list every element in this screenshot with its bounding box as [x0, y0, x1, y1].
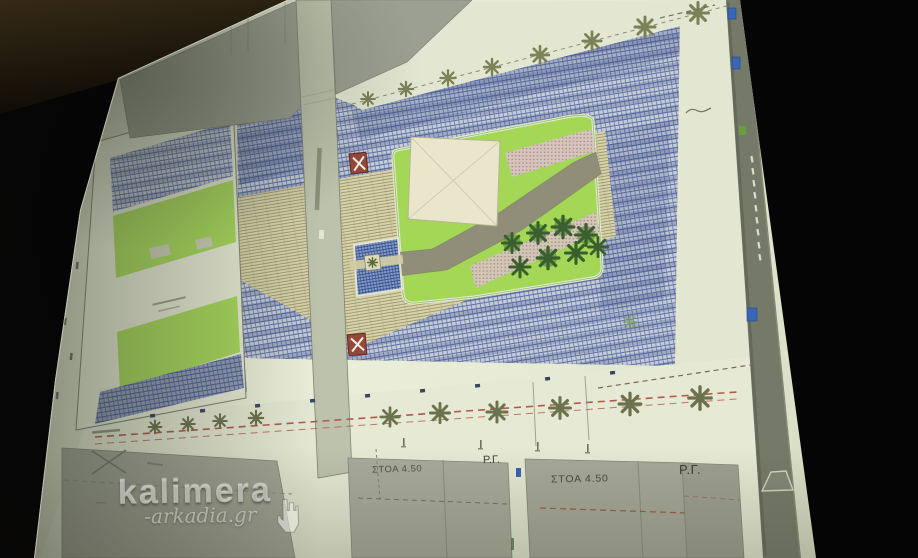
- projection-photo: ΣΤΟΑ 4.50 Ρ.Γ. ΣΤΟΑ 4.50 Ρ.Γ. kalimera -…: [0, 0, 918, 558]
- watermark-site: -arkadia.gr: [144, 501, 333, 528]
- stoa-label-left: ΣΤΟΑ 4.50: [372, 463, 422, 475]
- stoa-label-right: ΣΤΟΑ 4.50: [551, 472, 609, 485]
- watermark: kalimera -arkadia.gr: [118, 472, 334, 529]
- building-line-label-right: Ρ.Γ.: [679, 462, 701, 477]
- building-line-label-left: Ρ.Γ.: [483, 454, 500, 467]
